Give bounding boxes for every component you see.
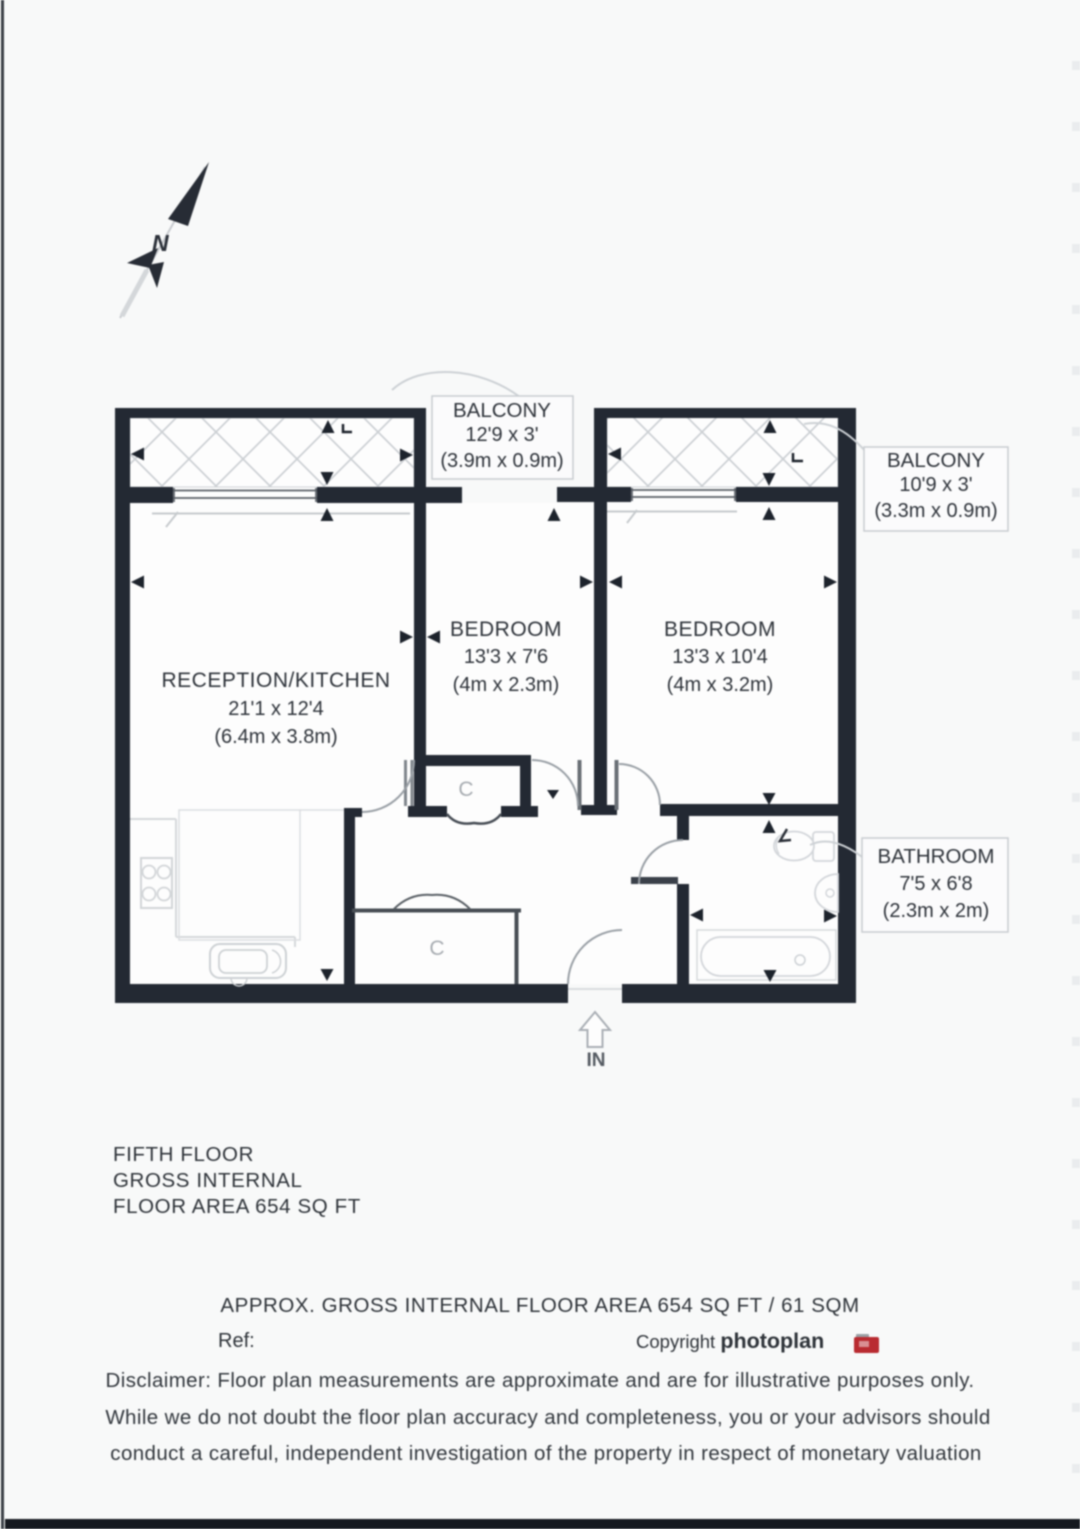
svg-text:FIFTH FLOOR: FIFTH FLOOR — [113, 1143, 254, 1166]
svg-text:Ref:: Ref: — [218, 1330, 255, 1352]
svg-text:BEDROOM: BEDROOM — [450, 618, 562, 641]
svg-text:conduct a careful, independent: conduct a careful, independent investiga… — [110, 1442, 981, 1465]
svg-text:RECEPTION/KITCHEN: RECEPTION/KITCHEN — [161, 669, 390, 692]
svg-text:21'1 x 12'4: 21'1 x 12'4 — [228, 698, 324, 720]
svg-text:BALCONY: BALCONY — [887, 449, 985, 472]
svg-text:BEDROOM: BEDROOM — [664, 618, 776, 641]
svg-text:7'5 x 6'8: 7'5 x 6'8 — [899, 873, 972, 895]
svg-text:C: C — [429, 937, 444, 960]
svg-text:BATHROOM: BATHROOM — [878, 845, 995, 868]
svg-text:(6.4m x 3.8m): (6.4m x 3.8m) — [214, 726, 337, 748]
svg-text:13'3 x 7'6: 13'3 x 7'6 — [464, 646, 548, 668]
svg-text:IN: IN — [587, 1050, 606, 1071]
svg-text:Copyright photoplan: Copyright photoplan — [636, 1329, 824, 1353]
svg-text:BALCONY: BALCONY — [453, 399, 551, 422]
svg-text:10'9 x 3': 10'9 x 3' — [899, 474, 972, 496]
svg-text:12'9 x 3': 12'9 x 3' — [465, 424, 538, 446]
svg-text:13'3 x 10'4: 13'3 x 10'4 — [672, 646, 768, 668]
svg-text:(2.3m x 2m): (2.3m x 2m) — [883, 900, 990, 922]
svg-text:FLOOR AREA 654 SQ FT: FLOOR AREA 654 SQ FT — [113, 1195, 361, 1218]
svg-text:(3.3m x 0.9m): (3.3m x 0.9m) — [874, 500, 997, 522]
svg-text:GROSS INTERNAL: GROSS INTERNAL — [113, 1169, 303, 1192]
svg-text:(4m x 2.3m): (4m x 2.3m) — [453, 674, 560, 696]
svg-text:N: N — [152, 230, 169, 256]
svg-text:APPROX. GROSS INTERNAL FLOOR A: APPROX. GROSS INTERNAL FLOOR AREA 654 SQ… — [220, 1294, 859, 1317]
svg-text:(4m x 3.2m): (4m x 3.2m) — [667, 674, 774, 696]
svg-text:While we do not doubt the floo: While we do not doubt the floor plan acc… — [105, 1406, 990, 1429]
svg-text:C: C — [458, 778, 473, 801]
svg-text:(3.9m x 0.9m): (3.9m x 0.9m) — [440, 450, 563, 472]
svg-text:Disclaimer: Floor plan measure: Disclaimer: Floor plan measurements are … — [106, 1369, 975, 1392]
